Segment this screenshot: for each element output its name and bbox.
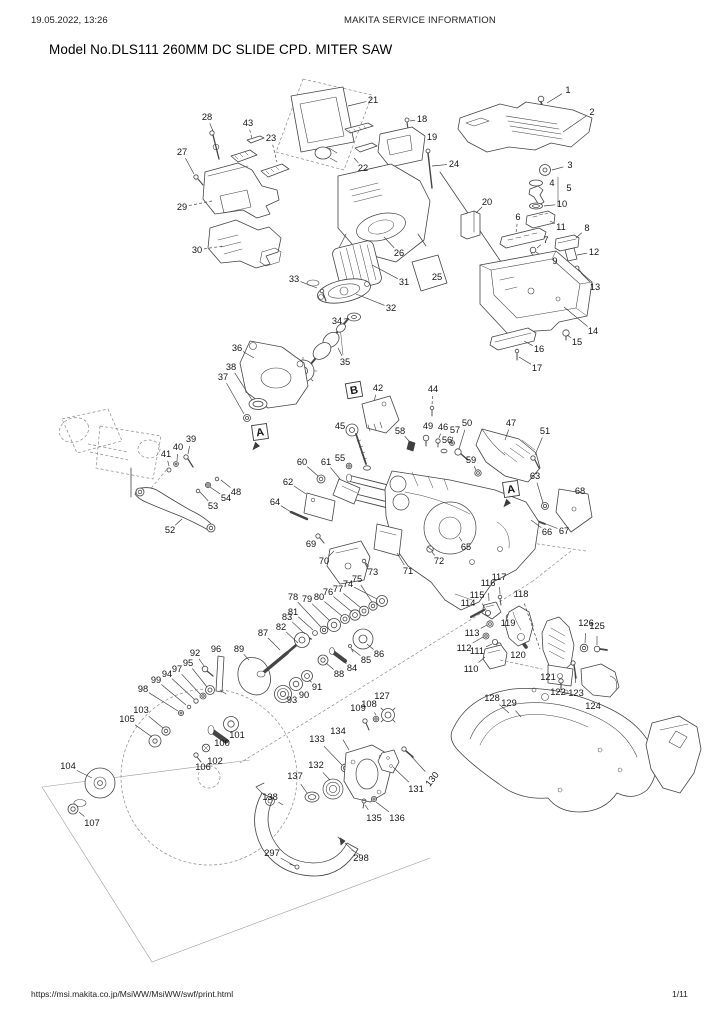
callout-75: 75: [352, 574, 362, 584]
leader-line-59: [474, 466, 476, 470]
leader-line-95: [192, 669, 207, 688]
leader-line-80: [324, 602, 342, 617]
callout-101: 101: [229, 730, 245, 740]
callout-49: 49: [423, 421, 433, 431]
callout-115: 115: [470, 590, 485, 600]
leader-line-51: [535, 438, 542, 456]
callout-17: 17: [532, 363, 542, 373]
callout-120: 120: [510, 650, 526, 660]
callout-29: 29: [177, 202, 187, 212]
leader-line-83: [292, 622, 305, 634]
leader-line-113: [481, 625, 487, 628]
callout-23: 23: [266, 133, 276, 143]
callout-3: 3: [567, 160, 572, 170]
callout-12: 12: [589, 247, 599, 257]
callout-105: 105: [119, 714, 135, 724]
callout-111: 111: [470, 646, 484, 656]
callout-117: 117: [492, 572, 507, 582]
callout-122: 122: [550, 687, 566, 697]
callout-5: 5: [566, 183, 571, 193]
leader-line-103: [149, 716, 163, 728]
leader-line-62: [294, 486, 306, 494]
callout-77: 77: [333, 584, 343, 594]
leader-line-63: [537, 483, 543, 503]
section-marker-b-2: B: [345, 381, 362, 398]
leader-line-89: [244, 654, 249, 660]
leader-line-48: [221, 480, 231, 488]
callout-41: 41: [161, 449, 171, 459]
callout-97: 97: [172, 664, 182, 674]
callout-60: 60: [297, 457, 307, 467]
leader-line-75: [361, 585, 372, 602]
callout-48: 48: [231, 487, 241, 497]
callout-118: 118: [514, 589, 529, 599]
print-page: 19.05.2022, 13:26 MAKITA SERVICE INFORMA…: [0, 0, 724, 1024]
callout-89: 89: [234, 644, 244, 654]
callout-31: 31: [399, 277, 409, 287]
leader-line-131: [393, 767, 409, 782]
callout-119: 119: [501, 618, 516, 628]
leader-line-52: [175, 519, 182, 525]
callout-123: 123: [568, 688, 584, 698]
leader-line-137: [301, 784, 307, 793]
exploded-parts-diagram: 1234567891011121314151617181920212223242…: [0, 0, 724, 1024]
exploded-parts-artwork: [68, 87, 701, 876]
callout-52: 52: [165, 525, 175, 535]
callout-33: 33: [289, 274, 299, 284]
callout-37: 37: [218, 372, 228, 382]
callout-79: 79: [302, 594, 312, 604]
callout-112: 112: [457, 643, 472, 653]
callout-88: 88: [334, 669, 344, 679]
leader-line-133: [324, 746, 342, 765]
leader-line-41: [168, 461, 169, 466]
leader-line-132: [323, 772, 330, 780]
leader-line-111: [486, 644, 492, 647]
page-number: 1/11: [672, 989, 688, 999]
callout-50: 50: [462, 418, 472, 428]
callout-2: 2: [589, 107, 594, 117]
callout-126: 126: [578, 618, 594, 628]
callout-8: 8: [584, 223, 589, 233]
callout-137: 137: [287, 771, 303, 781]
callout-63: 63: [530, 471, 540, 481]
callout-85: 85: [361, 655, 371, 665]
callout-128: 128: [484, 693, 500, 703]
callout-91: 91: [312, 682, 322, 692]
callout-21: 21: [368, 95, 378, 105]
leader-line-74: [354, 587, 377, 599]
callout-134: 134: [330, 726, 346, 736]
leader-line-108: [374, 712, 376, 715]
callout-18: 18: [417, 114, 427, 124]
callout-9: 9: [552, 256, 557, 266]
callout-113: 113: [465, 628, 480, 638]
center-cover-plate: [305, 745, 413, 808]
callout-95: 95: [183, 658, 193, 668]
leader-line-7: [537, 245, 541, 248]
leader-line-98: [149, 693, 178, 711]
callout-104: 104: [60, 761, 76, 771]
callout-82: 82: [276, 622, 286, 632]
leader-line-81: [298, 617, 313, 630]
callout-46: 46: [438, 422, 448, 432]
callout-19: 19: [427, 132, 437, 142]
callout-30: 30: [192, 245, 202, 255]
callout-45: 45: [335, 421, 345, 431]
leader-line-85: [352, 649, 361, 656]
leader-line-130: [411, 756, 425, 772]
handle-covers: [203, 163, 281, 268]
leader-line-20: [476, 207, 482, 213]
leader-line-77: [343, 594, 361, 609]
callout-47: 47: [506, 418, 516, 428]
callout-34: 34: [332, 316, 342, 326]
callout-107: 107: [84, 818, 100, 828]
leader-line-8: [576, 233, 582, 238]
callout-68: 68: [575, 486, 585, 496]
callout-39: 39: [186, 434, 196, 444]
leader-line-22: [354, 158, 358, 163]
leader-line-1: [547, 94, 562, 103]
callout-109: 109: [350, 703, 366, 713]
callout-96: 96: [211, 644, 221, 654]
callout-43: 43: [243, 118, 253, 128]
callout-53: 53: [208, 501, 218, 511]
leader-line-136: [376, 802, 389, 812]
callout-86: 86: [374, 649, 384, 659]
leader-line-54: [210, 487, 220, 494]
leader-line-18: [410, 120, 415, 121]
leader-line-88: [326, 663, 334, 670]
leader-line-28: [210, 123, 213, 131]
leader-line-33: [301, 282, 318, 288]
callout-26: 26: [394, 248, 404, 258]
section-marker-a-0: A: [249, 424, 270, 451]
callout-110: 110: [464, 664, 479, 674]
leader-line-27: [185, 158, 194, 174]
callout-24: 24: [449, 159, 459, 169]
leader-line-12: [577, 253, 587, 255]
leader-line-46: [439, 434, 441, 438]
callout-25: 25: [432, 272, 442, 282]
leader-line-10: [544, 205, 555, 206]
leader-line-126: [585, 633, 586, 643]
leader-line-61: [330, 467, 340, 479]
callout-22: 22: [358, 163, 368, 173]
callout-54: 54: [221, 493, 231, 503]
callout-35: 35: [340, 357, 350, 367]
callout-67: 67: [559, 526, 569, 536]
callout-298: 298: [353, 853, 369, 863]
callout-16: 16: [534, 344, 544, 354]
callout-7: 7: [543, 235, 548, 245]
callout-84: 84: [347, 663, 357, 673]
callout-57: 57: [450, 425, 460, 435]
leader-line-24: [432, 165, 447, 166]
leader-line-53: [200, 492, 208, 501]
leader-line-3: [552, 167, 563, 170]
leader-line-58: [405, 436, 409, 441]
leader-line-105: [135, 725, 152, 737]
callout-94: 94: [162, 669, 172, 679]
callout-69: 69: [306, 539, 316, 549]
callout-90: 90: [299, 690, 309, 700]
callout-135: 135: [366, 813, 382, 823]
callout-59: 59: [466, 455, 476, 465]
link-arm: [135, 455, 219, 532]
leader-line-134: [343, 740, 349, 750]
callout-42: 42: [373, 383, 383, 393]
callout-62: 62: [283, 477, 293, 487]
callout-136: 136: [389, 813, 405, 823]
callout-72: 72: [434, 556, 444, 566]
leader-line-39: [188, 446, 190, 454]
leader-line-78: [298, 602, 321, 627]
callout-78: 78: [288, 592, 298, 602]
callout-76: 76: [323, 587, 333, 597]
callout-32: 32: [386, 303, 396, 313]
callout-80: 80: [314, 592, 324, 602]
callout-56: 56: [442, 435, 452, 445]
callout-15: 15: [572, 337, 582, 347]
callout-121: 121: [540, 672, 556, 682]
callout-83: 83: [282, 612, 292, 622]
leader-line-37: [227, 383, 245, 414]
arm-fasteners: [346, 424, 481, 476]
footer-url: https://msi.makita.co.jp/MsiWW/MsiWW/swf…: [31, 989, 233, 999]
leader-line-44: [432, 396, 433, 405]
callout-13: 13: [590, 282, 600, 292]
callout-44: 44: [428, 384, 438, 394]
callout-106: 106: [195, 762, 211, 772]
callout-66: 66: [542, 527, 552, 537]
callout-6: 6: [515, 212, 520, 222]
callout-27: 27: [177, 147, 187, 157]
callout-129: 129: [501, 698, 517, 708]
callout-64: 64: [270, 497, 280, 507]
callout-28: 28: [202, 112, 212, 122]
svg-text:A: A: [506, 483, 516, 496]
callout-73: 73: [368, 567, 378, 577]
motor-stator: [307, 240, 383, 308]
callout-103: 103: [133, 705, 149, 715]
callout-55: 55: [335, 453, 345, 463]
callout-131: 131: [408, 784, 424, 794]
leader-line-79: [312, 604, 330, 621]
callout-127: 127: [374, 691, 390, 701]
callout-4: 4: [549, 178, 554, 188]
leader-line-99: [161, 685, 186, 706]
callout-130: 130: [423, 770, 440, 788]
callout-38: 38: [226, 362, 236, 372]
callout-70: 70: [319, 556, 329, 566]
leader-line-40: [177, 454, 178, 461]
leader-line-64: [281, 506, 291, 512]
callout-40: 40: [173, 442, 183, 452]
callout-133: 133: [309, 734, 325, 744]
callout-98: 98: [138, 684, 148, 694]
leader-line-43: [250, 130, 252, 139]
leader-line-6: [516, 224, 517, 233]
callout-58: 58: [395, 426, 405, 436]
callout-51: 51: [540, 426, 550, 436]
leader-line-17: [519, 357, 531, 364]
callout-92: 92: [190, 648, 200, 658]
leader-line-60: [307, 467, 318, 476]
leader-line-35: [338, 348, 342, 356]
callout-100: 100: [214, 738, 230, 748]
callout-93: 93: [287, 695, 297, 705]
callout-10: 10: [557, 199, 567, 209]
leader-line-23: [273, 145, 277, 162]
svg-text:A: A: [255, 426, 265, 439]
callout-138: 138: [262, 792, 278, 802]
leader-line-21: [348, 102, 366, 106]
battery-terminal-cover: [458, 96, 592, 152]
callout-11: 11: [556, 222, 566, 232]
callout-20: 20: [482, 197, 492, 207]
callout-14: 14: [588, 326, 598, 336]
leader-line-76: [333, 597, 352, 613]
leader-line-107: [79, 812, 84, 817]
callout-99: 99: [151, 675, 161, 685]
callout-132: 132: [308, 760, 324, 770]
callout-87: 87: [258, 628, 268, 638]
callout-36: 36: [232, 343, 242, 353]
callout-65: 65: [461, 542, 471, 552]
callout-61: 61: [321, 457, 331, 467]
callout-1: 1: [565, 85, 570, 95]
leader-line-138: [279, 802, 284, 805]
callout-297: 297: [264, 848, 280, 858]
callout-71: 71: [403, 566, 413, 576]
leader-line-92: [199, 659, 204, 666]
gear-housing: [240, 341, 308, 422]
leader-line-87: [268, 638, 280, 650]
leader-line-32: [356, 294, 385, 305]
callout-124: 124: [585, 701, 601, 711]
leader-line-15: [567, 335, 571, 338]
leader-line-135: [365, 805, 368, 810]
